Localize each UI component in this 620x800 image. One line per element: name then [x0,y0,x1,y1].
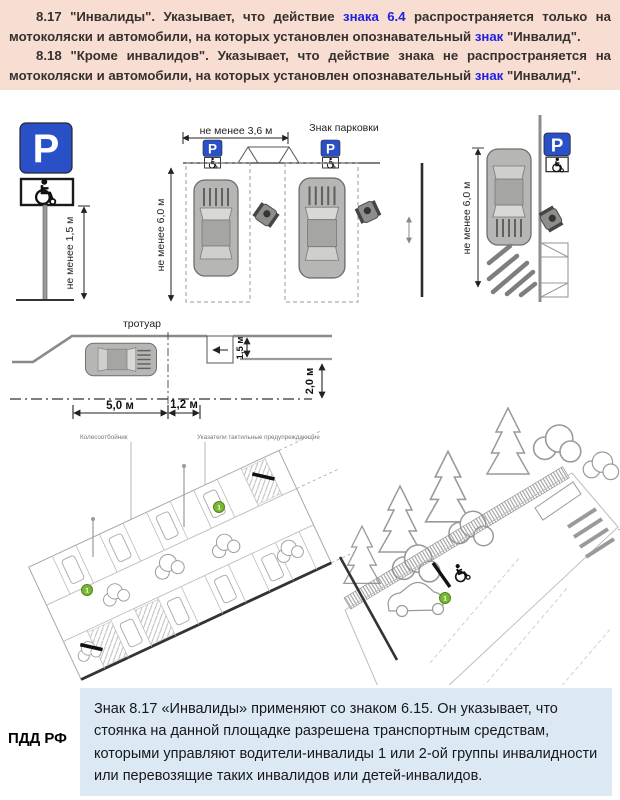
rule-8-17-znak-link[interactable]: знак [475,29,503,44]
pdd-note-text: Знак 8.17 «Инвалиды» применяют со знаком… [94,701,597,784]
svg-text:5,0 м: 5,0 м [106,400,134,412]
dimension-5m: 5,0 м [73,400,167,419]
rules-text-block: 8.17 "Инвалиды". Указывает, что действие… [0,0,620,90]
sign-pole [43,205,47,300]
svg-text:не менее 1,5 м: не менее 1,5 м [64,217,76,290]
car-iso [388,583,444,617]
street-plan-diagram: тротуар 5,0 м 1,2 м 1,5 м [10,318,332,419]
dimension-6m-right: не менее 6,0 м [461,148,484,287]
dimension-1-5m-kerb: 1,5 м [235,337,247,360]
svg-text:2,0 м: 2,0 м [304,368,316,395]
parking-diagrams: P [0,95,620,685]
numbered-marker-1: 1 [82,585,93,596]
rule-8-17: 8.17 "Инвалиды". Указывает, что действие… [9,7,611,46]
car-2 [299,178,345,278]
svg-text:1: 1 [85,588,89,595]
perpendicular-parking-diagram: не менее 3,6 м Знак парковки не менее 6,… [155,122,382,302]
dimension-1-2m: 1,2 м [168,399,200,419]
car-1 [194,180,238,276]
rule-8-18: 8.18 "Кроме инвалидов". Указывает, что д… [9,46,611,85]
car-parallel [487,149,531,245]
parking-sign-label: Знак парковки [309,122,379,134]
rule-8-17-text: 8.17 "Инвалиды". Указывает, что действие [36,9,343,24]
svg-text:1: 1 [217,505,221,512]
numbered-marker-2: 1 [214,502,225,513]
svg-text:1,2 м: 1,2 м [170,399,198,411]
wheel-stop-label: Колесоотбойник [80,433,128,441]
dimension-6m-left: не менее 6,0 м [155,168,171,301]
crosswalk-stripes [568,509,614,557]
dimension-1-5m: не менее 1,5 м [64,206,90,299]
svg-text:не менее 6,0 м: не менее 6,0 м [155,199,167,272]
source-label: ПДД РФ [8,730,78,747]
curb-ramp-island [238,147,299,163]
svg-text:1,5 м: 1,5 м [235,337,246,360]
iso-right-drawing: 1 [340,408,620,685]
dimension-2m: 2,0 м [304,364,322,398]
svg-text:не менее 3,6 м: не менее 3,6 м [200,125,273,137]
parallel-parking-diagram: не менее 6,0 м [461,115,570,302]
svg-text:1: 1 [443,596,447,603]
p-letter: P [33,127,60,171]
rule-8-18-znak-link[interactable]: знак [475,68,503,83]
sign-post-diagram: P не менее 1,5 м [16,123,90,300]
rule-8-17-sign-link[interactable]: знака 6.4 [343,9,406,24]
car-street [85,343,156,376]
numbered-marker: 1 [440,593,451,604]
dimension-3-6m: не менее 3,6 м [183,125,288,144]
page: 8.17 "Инвалиды". Указывает, что действие… [0,0,620,800]
pdd-note-box: Знак 8.17 «Инвалиды» применяют со знаком… [80,688,612,796]
bench [541,243,568,297]
iso-left-drawing: Колесоотбойник Указатели тактильные пред… [29,430,375,679]
sidewalk-label: тротуар [123,318,161,330]
no-parking-hatch-zone [489,246,535,295]
svg-text:не менее 6,0 м: не менее 6,0 м [461,182,473,255]
